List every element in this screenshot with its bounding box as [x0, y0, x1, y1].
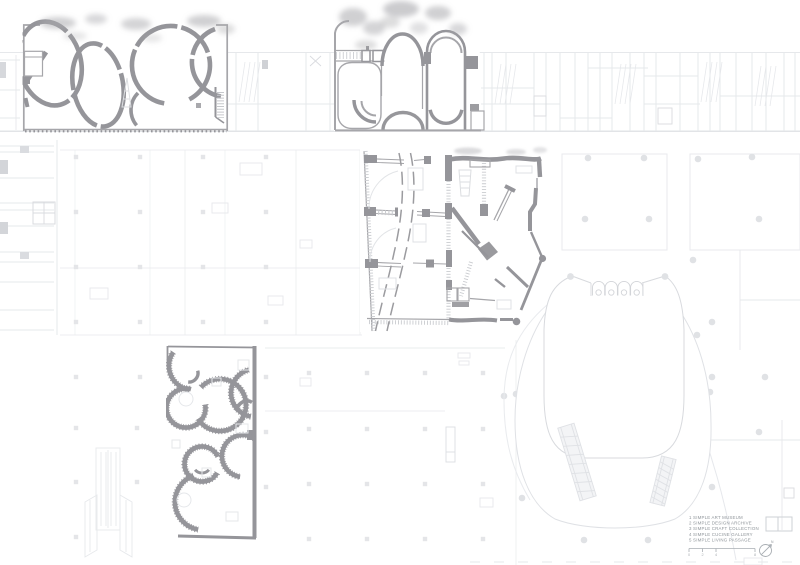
- svg-text:2 SIMPLE DESIGN ARCHIVE: 2 SIMPLE DESIGN ARCHIVE: [689, 521, 752, 526]
- svg-text:1 SIMPLE ART MUSEUM: 1 SIMPLE ART MUSEUM: [689, 515, 743, 520]
- svg-text:8: 8: [754, 553, 756, 557]
- svg-text:0: 0: [688, 553, 690, 557]
- svg-text:2: 2: [702, 553, 704, 557]
- svg-text:3 SIMPLE CRAFT COLLECTION: 3 SIMPLE CRAFT COLLECTION: [689, 526, 759, 531]
- svg-text:4: 4: [715, 553, 717, 557]
- svg-text:5 SIMPLE LIVING PASSAGE: 5 SIMPLE LIVING PASSAGE: [689, 537, 751, 542]
- svg-text:4 SIMPLE CUCINE GALLERY: 4 SIMPLE CUCINE GALLERY: [689, 532, 753, 537]
